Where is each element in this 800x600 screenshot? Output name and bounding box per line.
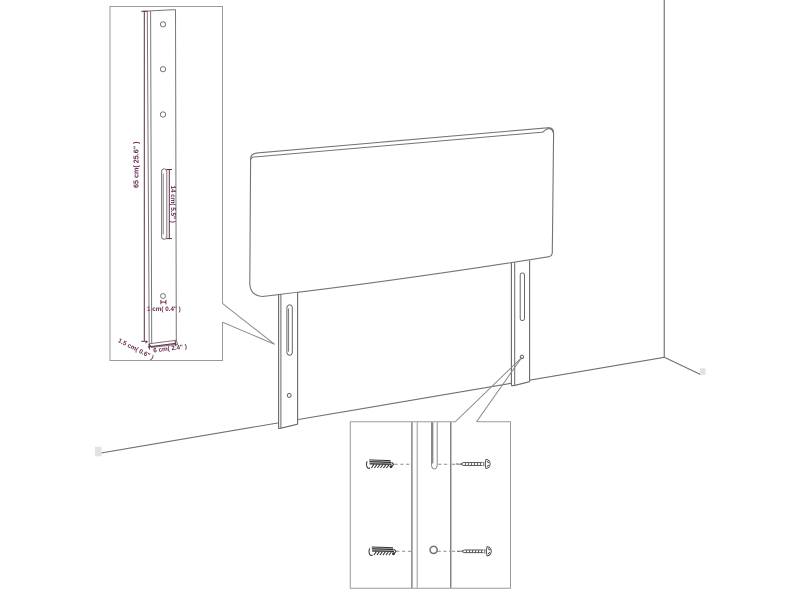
svg-text:1 cm( 0.4" ): 1 cm( 0.4" ) xyxy=(147,306,181,313)
svg-text:65 cm( 25.6" ): 65 cm( 25.6" ) xyxy=(131,141,140,188)
svg-text:14 cm( 5.5" ): 14 cm( 5.5" ) xyxy=(169,186,176,223)
